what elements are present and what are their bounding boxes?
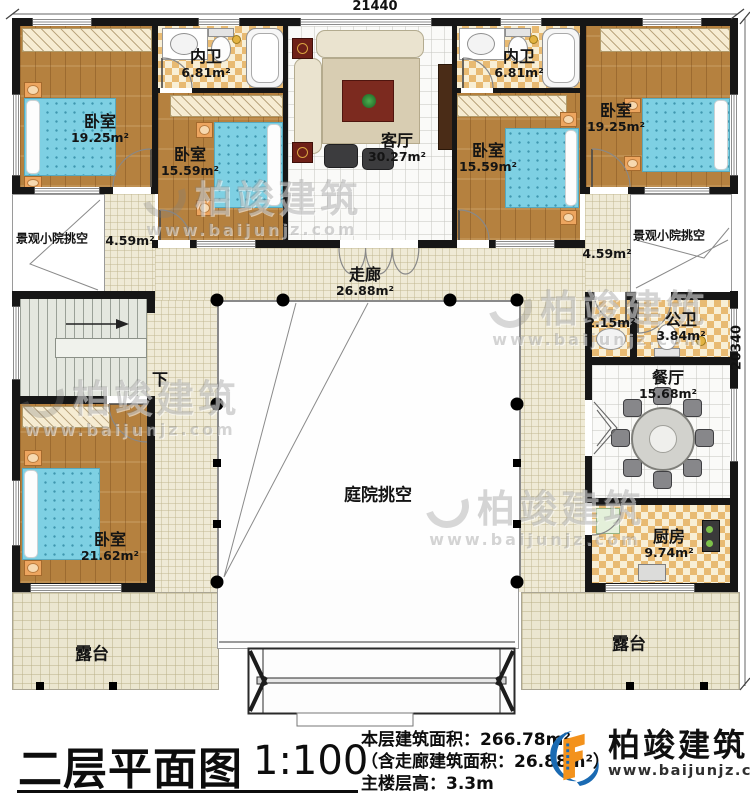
stove-icon: [702, 520, 720, 552]
column-dot: [511, 294, 524, 307]
door-opening: [590, 187, 628, 194]
door-opening: [107, 396, 147, 404]
door-opening: [594, 292, 626, 300]
sink-icon: [467, 33, 495, 55]
bathtub-icon: [542, 28, 580, 88]
window: [12, 94, 20, 176]
area-label-wash-nook: 2.15m²: [586, 316, 635, 330]
pillow-icon: [565, 130, 577, 206]
wall-segment: [12, 291, 155, 299]
nightstand-icon: [624, 156, 641, 171]
wall-segment: [152, 26, 158, 187]
window: [495, 240, 555, 248]
window: [196, 240, 256, 248]
kitchen-sink-icon: [638, 564, 666, 581]
room-label-bedroom-mid-left: 卧室 15.59m²: [161, 146, 219, 178]
chair-icon: [683, 399, 702, 417]
drawing-scale: 1:100: [253, 738, 368, 784]
floor-drain-icon: [529, 35, 538, 44]
wall-segment: [592, 498, 730, 505]
window: [644, 187, 710, 194]
door-opening: [158, 240, 190, 248]
floor-plan-canvas: 卧室 19.25m² 内卫 6.81m² 卧室 15.59m² 客厅 30.27…: [0, 0, 750, 798]
company-url: www.baijunjz.com: [608, 763, 750, 779]
wardrobe-icon: [170, 95, 283, 117]
chair-icon: [623, 459, 642, 477]
wall-segment: [452, 26, 457, 248]
room-label-terrace-left: 露台: [75, 645, 109, 664]
column-post: [513, 459, 521, 467]
window: [605, 584, 695, 592]
wall-segment: [147, 291, 155, 313]
room-label-living: 客厅 30.27m²: [368, 132, 426, 164]
fridge-icon: [596, 508, 620, 534]
wall-segment: [283, 26, 288, 248]
nightstand-icon: [196, 200, 213, 216]
door-opening: [457, 240, 489, 248]
burner-icon: [706, 526, 713, 533]
column-dot: [444, 294, 457, 307]
bathtub-icon: [246, 28, 284, 88]
column-post: [213, 459, 221, 467]
wall-segment: [147, 396, 155, 583]
courtyard-area: [217, 300, 521, 586]
nightstand-icon: [24, 450, 42, 466]
room-label-bedroom-top-right: 卧室 19.25m²: [587, 102, 645, 134]
side-strip-right-floor: [585, 194, 630, 292]
wall-segment: [580, 26, 586, 187]
column-dot: [211, 576, 224, 589]
chair-icon: [683, 459, 702, 477]
side-table-icon: [292, 142, 313, 163]
column-dot: [511, 398, 524, 411]
company-name: 柏竣建筑: [608, 727, 750, 763]
room-label-bedroom-top-left: 卧室 19.25m²: [71, 113, 129, 145]
wardrobe-icon: [600, 28, 730, 52]
side-table-icon: [292, 38, 313, 59]
pillow-icon: [26, 100, 40, 174]
column-dot: [511, 576, 524, 589]
column-post: [700, 682, 708, 690]
window: [30, 584, 122, 592]
wall-segment: [592, 357, 730, 365]
room-label-dining: 餐厅 15.68m²: [639, 369, 697, 401]
room-label-inner-bath-left: 内卫 6.81m²: [181, 48, 230, 80]
door-opening: [340, 240, 418, 248]
column-post: [513, 520, 521, 528]
window: [34, 187, 100, 194]
dimension-right: 20340: [730, 318, 745, 378]
sofa-icon: [294, 58, 322, 154]
column-post: [109, 682, 117, 690]
room-label-terrace-right: 露台: [612, 635, 646, 654]
nightstand-icon: [24, 560, 42, 576]
nightstand-icon: [196, 122, 213, 138]
corridor-left-floor: [147, 300, 217, 592]
window: [32, 18, 92, 26]
area-label-scenic-void-right: 4.59m²: [582, 247, 631, 261]
tv-cabinet-icon: [438, 64, 453, 150]
door-opening: [160, 88, 192, 93]
page-title: 二层平面图: [18, 733, 243, 797]
window: [730, 94, 738, 176]
window: [12, 306, 20, 380]
column-post: [36, 682, 44, 690]
column-post: [213, 520, 221, 528]
wardrobe-icon: [22, 28, 152, 52]
pillow-icon: [267, 124, 281, 206]
courtyard-lower-band: [217, 580, 519, 649]
window: [12, 480, 20, 546]
armchair-icon: [324, 144, 358, 168]
corridor-right-floor: [517, 300, 585, 592]
stair-landing-rail: [55, 338, 147, 358]
window: [500, 18, 542, 26]
column-post: [626, 682, 634, 690]
sofa-icon: [316, 30, 424, 58]
door-opening: [636, 292, 671, 300]
door-opening: [461, 88, 493, 93]
nightstand-icon: [24, 82, 42, 98]
room-label-courtyard: 庭院挑空: [344, 486, 412, 505]
room-label-public-bath: 公卫 3.84m²: [656, 311, 705, 343]
column-dot: [211, 398, 224, 411]
door-opening: [113, 187, 151, 194]
title-underline: [17, 790, 358, 793]
burner-icon: [706, 540, 713, 547]
door-opening: [585, 503, 592, 535]
room-label-bedroom-mid-right: 卧室 15.59m²: [459, 142, 517, 174]
scenic-void-right-area: [630, 194, 732, 294]
wardrobe-icon: [22, 406, 110, 428]
window: [300, 18, 432, 26]
sink-icon: [596, 328, 626, 350]
door-opening: [585, 400, 592, 456]
chair-icon: [653, 471, 672, 489]
company-logo-icon: [545, 727, 603, 787]
plant-icon: [362, 94, 376, 108]
nightstand-icon: [560, 210, 577, 225]
label-stairs-down: 下: [152, 371, 168, 389]
room-label-bedroom-bottom-left: 卧室 21.62m²: [81, 531, 139, 563]
company-logo: 柏竣建筑 www.baijunjz.com: [545, 727, 750, 787]
wardrobe-icon: [457, 95, 567, 117]
pillow-icon: [24, 470, 38, 558]
room-label-scenic-void-left: 景观小院挑空: [16, 232, 88, 245]
room-label-corridor: 走廊 26.88m²: [336, 266, 394, 298]
room-label-inner-bath-right: 内卫 6.81m²: [494, 48, 543, 80]
area-label-scenic-void-left: 4.59m²: [105, 234, 154, 248]
chair-icon: [623, 399, 642, 417]
terrace-left-area: [12, 592, 219, 690]
dimension-top: 21440: [325, 0, 425, 14]
chair-icon: [611, 429, 630, 447]
window: [642, 18, 702, 26]
dining-table-icon: [631, 407, 695, 471]
room-label-scenic-void-right: 景观小院挑空: [633, 229, 705, 242]
column-dot: [211, 294, 224, 307]
floor-drain-icon: [232, 35, 241, 44]
room-label-kitchen: 厨房 9.74m²: [644, 528, 693, 560]
chair-icon: [695, 429, 714, 447]
nightstand-icon: [560, 112, 577, 127]
column-dot: [277, 294, 290, 307]
window: [730, 388, 738, 462]
pillow-icon: [714, 100, 728, 170]
wall-segment: [288, 240, 340, 248]
window: [198, 18, 240, 26]
